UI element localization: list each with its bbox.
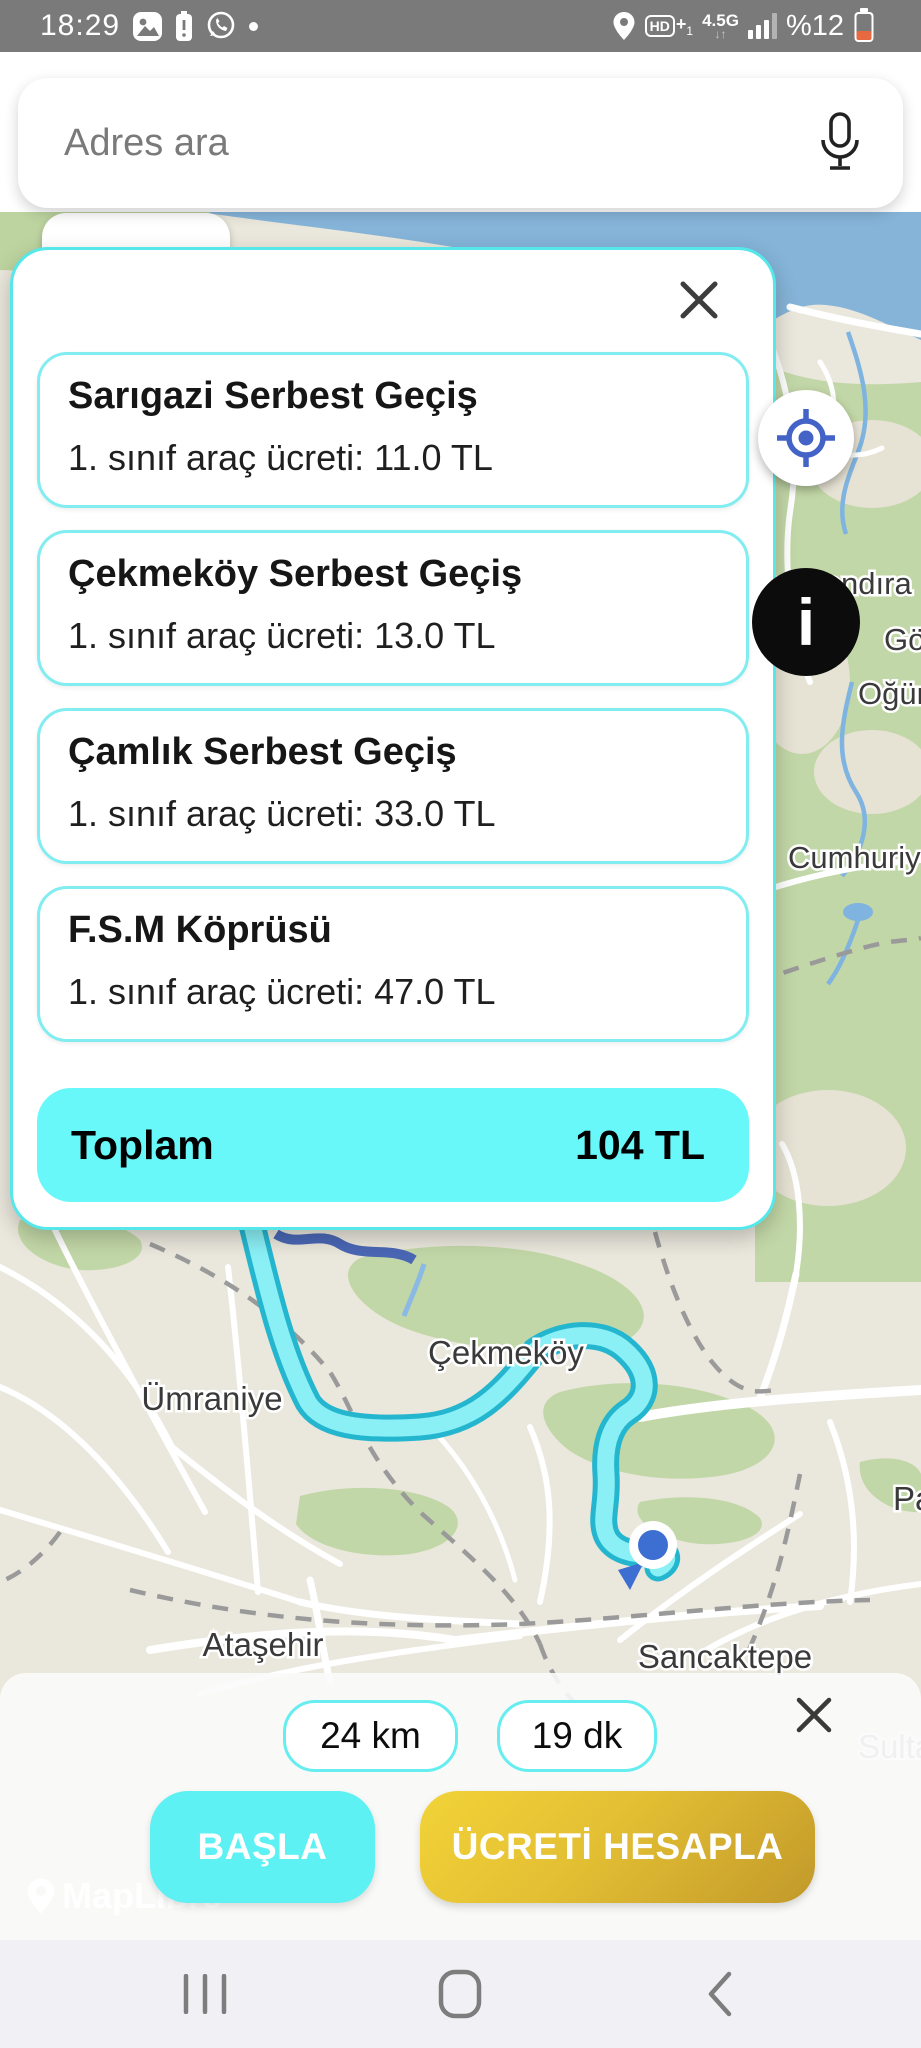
back-chevron-icon [705,1970,735,2018]
toll-title: F.S.M Köprüsü [68,909,332,952]
toll-price-modal: Sarıgazi Serbest Geçiş 1. sınıf araç ücr… [10,247,776,1230]
toll-fee: 1. sınıf araç ücreti: 13.0 TL [68,615,496,657]
route-summary-sheet: 24 km 19 dk MapLibre BAŞLA ÜCRETİ HESAPL… [0,1673,921,1940]
toll-item-camlik: Çamlık Serbest Geçiş 1. sınıf araç ücret… [37,708,749,864]
info-button[interactable]: i [752,568,860,676]
battery-level-icon [853,8,875,44]
maplibre-pin-icon [26,1876,56,1916]
home-icon [438,1969,482,2019]
toll-item-fsm: F.S.M Köprüsü 1. sınıf araç ücreti: 47.0… [37,886,749,1042]
map-label-atasehir: Ataşehir [202,1626,323,1663]
network-type-indicator: 4.5G ↓↑ [702,12,739,40]
distance-value: 24 km [320,1715,421,1757]
clock: 18:29 [40,9,120,43]
whatsapp-notification-icon [205,10,237,42]
recents-button[interactable] [150,1940,260,2048]
start-button[interactable]: BAŞLA [150,1791,375,1903]
map-label-cekmekoy: Çekmeköy [428,1334,584,1371]
total-label: Toplam [71,1122,214,1169]
info-icon: i [797,584,815,660]
map-label-gol: Göl [884,622,921,657]
distance-pill: 24 km [283,1700,458,1772]
toll-title: Çekmeköy Serbest Geçiş [68,553,522,596]
recents-icon [176,1974,234,2014]
map-label-umraniye: Ümraniye [141,1380,282,1417]
search-input[interactable] [62,121,817,166]
map-label-cumhuriyet: Cumhuriy [788,840,921,875]
signal-strength-icon [748,13,777,39]
android-nav-bar [0,1940,921,2048]
map-label-pa: Pa [893,1480,921,1517]
back-button[interactable] [665,1940,775,2048]
microphone-icon[interactable] [817,112,863,174]
address-search-bar[interactable] [18,78,903,208]
total-value: 104 TL [575,1122,705,1169]
hd-volte-icon: HD+1 [645,15,693,37]
toll-item-cekmekoy: Çekmeköy Serbest Geçiş 1. sınıf araç ücr… [37,530,749,686]
gallery-notification-icon [132,11,163,42]
sheet-close-icon[interactable] [792,1693,836,1737]
toll-fee: 1. sınıf araç ücreti: 11.0 TL [68,437,493,479]
map-label-sancaktepe: Sancaktepe [638,1638,812,1675]
my-location-button[interactable] [758,390,854,486]
modal-close-icon[interactable] [675,276,723,324]
home-button[interactable] [405,1940,515,2048]
battery-alert-notification-icon [175,11,193,42]
notification-dot-icon [249,22,258,31]
location-active-icon [612,11,636,41]
battery-percentage: %12 [786,10,844,43]
duration-value: 19 dk [532,1715,623,1757]
status-bar: 18:29 HD+1 [0,0,921,52]
map-label-ogum: Oğüm [858,676,921,711]
toll-fee: 1. sınıf araç ücreti: 33.0 TL [68,793,496,835]
gps-crosshair-icon [775,407,837,469]
toll-fee: 1. sınıf araç ücreti: 47.0 TL [68,971,496,1013]
phone-screen: 18:29 HD+1 [0,0,921,2048]
toll-title: Çamlık Serbest Geçiş [68,731,457,774]
toll-title: Sarıgazi Serbest Geçiş [68,375,478,418]
duration-pill: 19 dk [497,1700,657,1772]
total-bar: Toplam 104 TL [37,1088,749,1202]
toll-item-sarigazi: Sarıgazi Serbest Geçiş 1. sınıf araç ücr… [37,352,749,508]
calculate-fee-button[interactable]: ÜCRETİ HESAPLA [420,1791,815,1903]
